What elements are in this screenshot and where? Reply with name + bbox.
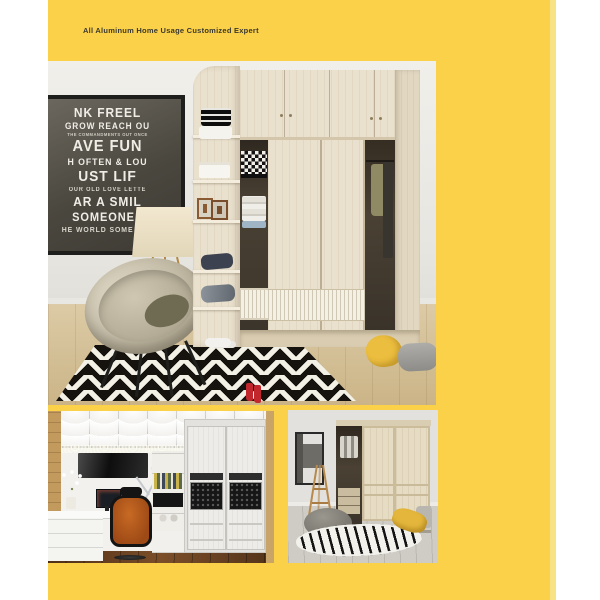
dark-garment [383,162,393,258]
sliding-door [187,426,226,550]
door-rail [396,484,428,486]
cabinet-knob [370,117,373,120]
photo-main-wardrobe-room: NK FREEL GROW REACH OU THE COMMANDMENTS … [48,61,436,405]
hanging-clothes [340,436,358,458]
sliding-door [362,426,395,521]
lower-drawers [152,531,184,553]
door-dark-strip [229,473,262,480]
striped-hat-box [201,108,231,126]
poster-line: H OFTEN & LOU [48,157,171,169]
office-chair-base [114,555,146,560]
door-dark-strip [190,473,223,480]
red-boot [254,385,261,403]
white-round-box [199,126,232,139]
panel-edge-highlight [550,0,556,600]
black-storage-box [153,493,183,507]
checkered-basket [241,151,267,178]
photo-sliding-wardrobe [288,410,438,563]
chair-inner [91,260,201,351]
poster-line: GROW REACH OU [48,121,171,132]
door-rail [229,523,262,525]
door-rail [364,494,393,496]
shelf [193,307,240,310]
shelf [193,270,240,273]
sliding-door [226,426,265,550]
lace-pattern-band [268,289,365,321]
maple-wardrobe [240,70,420,347]
shelf [193,220,240,223]
open-hanging-section [365,140,395,330]
gray-floor-cushion [397,342,436,372]
door-rail [396,494,428,496]
poster-line: NK FREEL [48,105,171,121]
office-chair-headrest [120,487,142,496]
yellow-background-panel: All Aluminum Home Usage Customized Exper… [48,0,550,600]
cabinet-knob [289,114,292,117]
photo-study-room [48,411,274,563]
chair-cushion [140,288,194,333]
poster-line: UST LIF [48,168,171,186]
blue-folded-cloth [242,221,266,228]
white-flowers [58,469,86,499]
white-slippers [205,338,231,347]
page: All Aluminum Home Usage Customized Exper… [0,0,600,600]
shelf [193,180,240,183]
navy-pillow [200,253,233,271]
mesh-panel [229,482,262,510]
patterned-drawers [240,288,268,320]
corner-shelf-unit [193,66,240,347]
cabinet-knob [280,114,283,117]
office-chair-back [110,495,152,547]
door-rail [229,539,262,541]
mesh-sliding-wardrobe [184,419,266,553]
desk-drawer-unit [48,518,103,561]
cabinet-knob [379,117,382,120]
folded-clothes [242,196,266,221]
ladder-rung [314,488,326,490]
floor-lamp-shade [132,207,196,257]
open-shelf-column [240,140,268,347]
poster-line: AVE FUN [48,137,171,157]
ornaments [156,511,180,525]
books [154,473,182,489]
gray-pillow [200,284,235,303]
red-boot [246,383,253,401]
mesh-panel [190,482,223,510]
tagline: All Aluminum Home Usage Customized Exper… [83,26,259,35]
wardrobe-side-panel [395,70,420,347]
poster-line: OUR OLD LOVE LETTE [48,187,171,194]
door-rail [190,523,223,525]
open-shelf-unit [152,451,184,553]
top-cabinets [240,70,420,140]
black-wall-cabinet [78,453,148,478]
storage-box [199,162,230,178]
door-rail [190,539,223,541]
side-wall [266,411,274,563]
flower-vase [66,497,76,509]
picture-frame [211,200,228,220]
door-rail [364,484,393,486]
ladder-rung [312,502,328,504]
